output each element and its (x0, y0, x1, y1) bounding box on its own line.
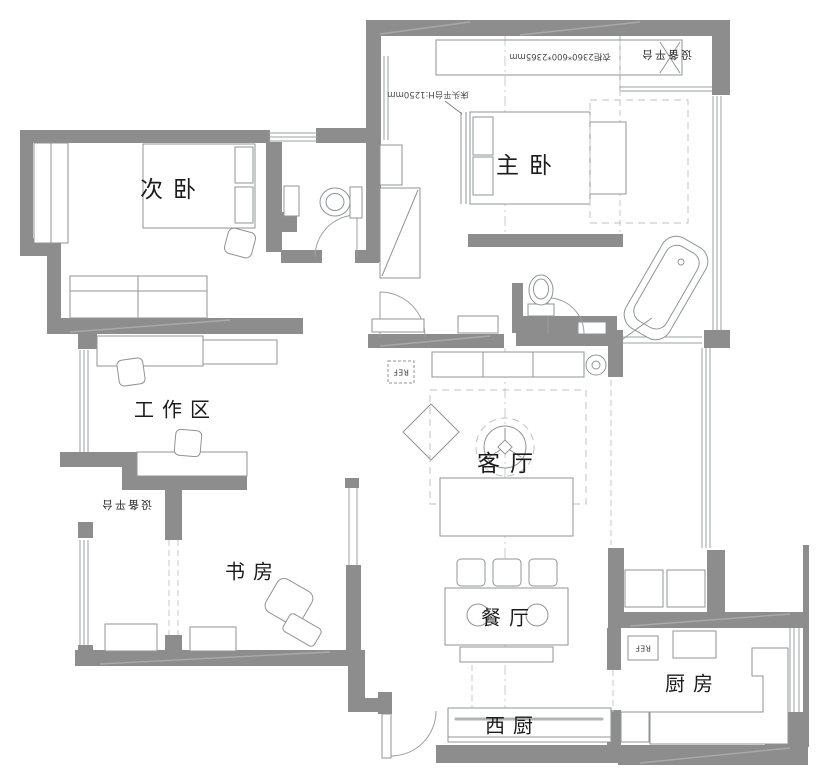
dining-chair (493, 559, 521, 586)
window-kitchen-right (790, 628, 799, 712)
desk-chair (116, 357, 145, 386)
floor-plan-drawing (0, 0, 828, 770)
dining-bench (460, 647, 553, 662)
bathtub (618, 230, 713, 345)
label-north-platform: 设备平台 (640, 47, 692, 63)
room-label-living-room: 客厅 (477, 444, 543, 478)
room-label-study: 书房 (225, 556, 281, 585)
pillow (473, 117, 493, 155)
sofa (432, 352, 584, 377)
desk-chair (174, 429, 202, 457)
corridor-bench (372, 319, 424, 332)
door-main-entry (382, 711, 436, 758)
window-west-platform (80, 540, 88, 645)
tv-table (440, 478, 573, 536)
island (673, 631, 716, 658)
room-label-work-area: 工作区 (134, 394, 218, 423)
shelf (284, 186, 299, 216)
label-west-platform: 设备平台 (100, 497, 152, 513)
desk (97, 336, 203, 366)
side-table (586, 355, 606, 375)
room-label-kitchen: 厨房 (665, 668, 721, 697)
floor-plan: 次卧 主卧 工作区 客厅 书房 餐厅 西厨 厨房 设备平台 设备平台 衣柜236… (0, 0, 828, 770)
window-living-right (702, 348, 710, 548)
bathroom-1-toilet (320, 187, 362, 218)
dining-chair (457, 559, 485, 586)
fridge-label-living: REF (393, 368, 409, 377)
room-label-master-bedroom: 主卧 (496, 146, 562, 180)
bench (590, 122, 626, 194)
living-room-furniture (372, 316, 606, 536)
cabinet (190, 627, 236, 651)
annotation-leader (445, 101, 462, 114)
pillow (473, 157, 493, 195)
glass-partition-study (349, 488, 357, 565)
chair (223, 227, 257, 259)
annotation-wardrobe-size: 衣柜2360*600*2365mm (509, 51, 611, 63)
annotation-headboard-platform: 床头平台H:1250mm (387, 89, 468, 101)
nook-seat (625, 570, 663, 607)
window-secondary-bedroom-top (268, 133, 318, 141)
lounge-chair (403, 404, 459, 460)
master-bedroom-furniture (436, 40, 688, 223)
cabinet (105, 624, 157, 651)
room-label-secondary-bedroom: 次卧 (140, 170, 206, 204)
appliance (621, 712, 649, 742)
room-label-west-kitchen: 西厨 (485, 710, 541, 739)
corridor-cabinet (458, 316, 498, 333)
room-label-dining-room: 餐厅 (481, 602, 537, 631)
window-work-area-left (80, 350, 88, 452)
fridge-label-kitchen: REF (635, 644, 651, 653)
cabinet (203, 340, 277, 364)
dining-chair (529, 559, 557, 586)
window-master-right (713, 96, 721, 330)
pillow (235, 147, 253, 183)
nook-seat (667, 570, 705, 607)
pillow (235, 187, 253, 223)
hall-cabinet (380, 145, 420, 278)
study-furniture (105, 576, 323, 651)
